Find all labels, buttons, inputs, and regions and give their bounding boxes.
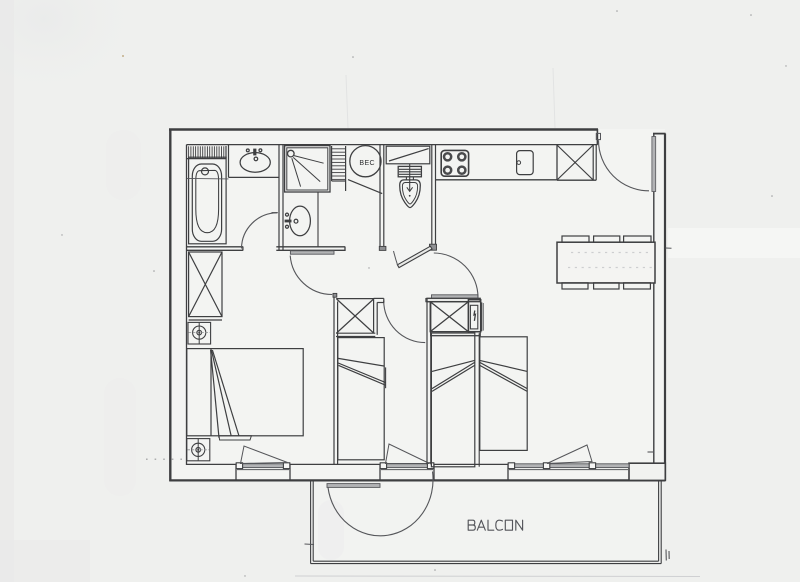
svg-text:BEC: BEC [359,160,375,167]
